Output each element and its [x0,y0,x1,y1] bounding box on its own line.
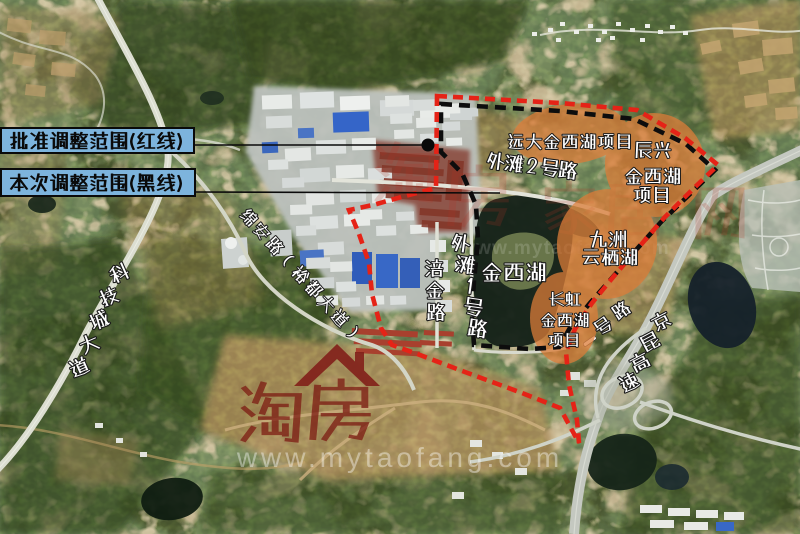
svg-text:www.mytaofang.com: www.mytaofang.com [236,442,563,473]
